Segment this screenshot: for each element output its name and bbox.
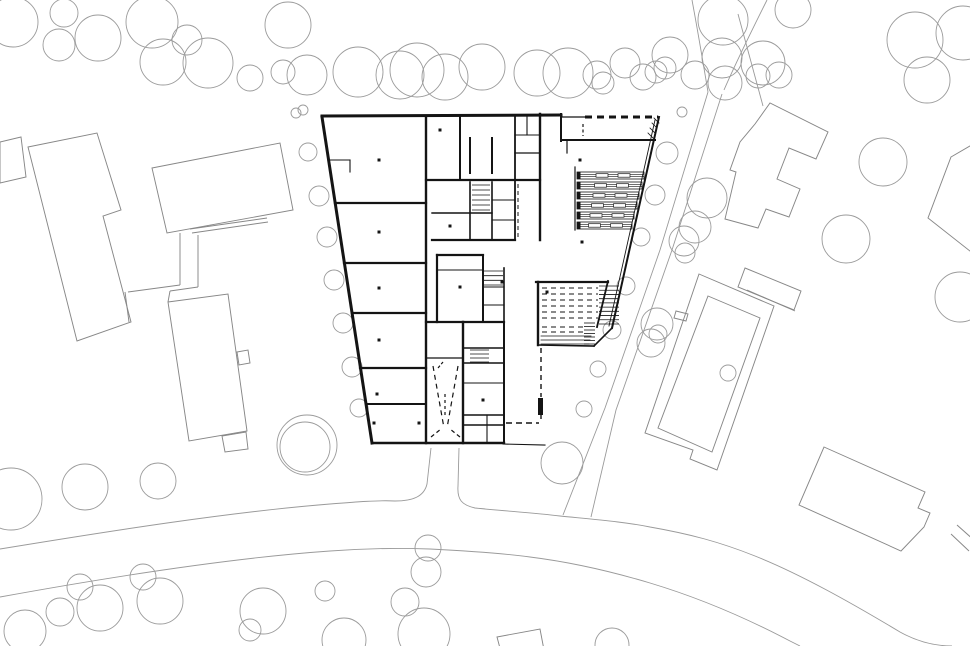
column-dot [482,399,485,402]
column-dot [418,422,421,425]
wall-segment [538,345,594,346]
site-plan-stage [0,0,970,646]
wall-post [538,398,543,415]
column-dot [581,241,584,244]
column-dot [439,129,442,132]
column-dot [376,393,379,396]
column-dot [449,225,452,228]
column-dot [501,281,504,284]
column-dot [378,159,381,162]
column-dot [373,422,376,425]
site-plan-drawing [0,0,970,646]
wall-segment [322,115,561,116]
column-dot [378,287,381,290]
column-dot [459,286,462,289]
column-dot [546,291,549,294]
column-dot [378,339,381,342]
column-dot [579,159,582,162]
column-dot [378,231,381,234]
stair-hatch [584,323,595,344]
